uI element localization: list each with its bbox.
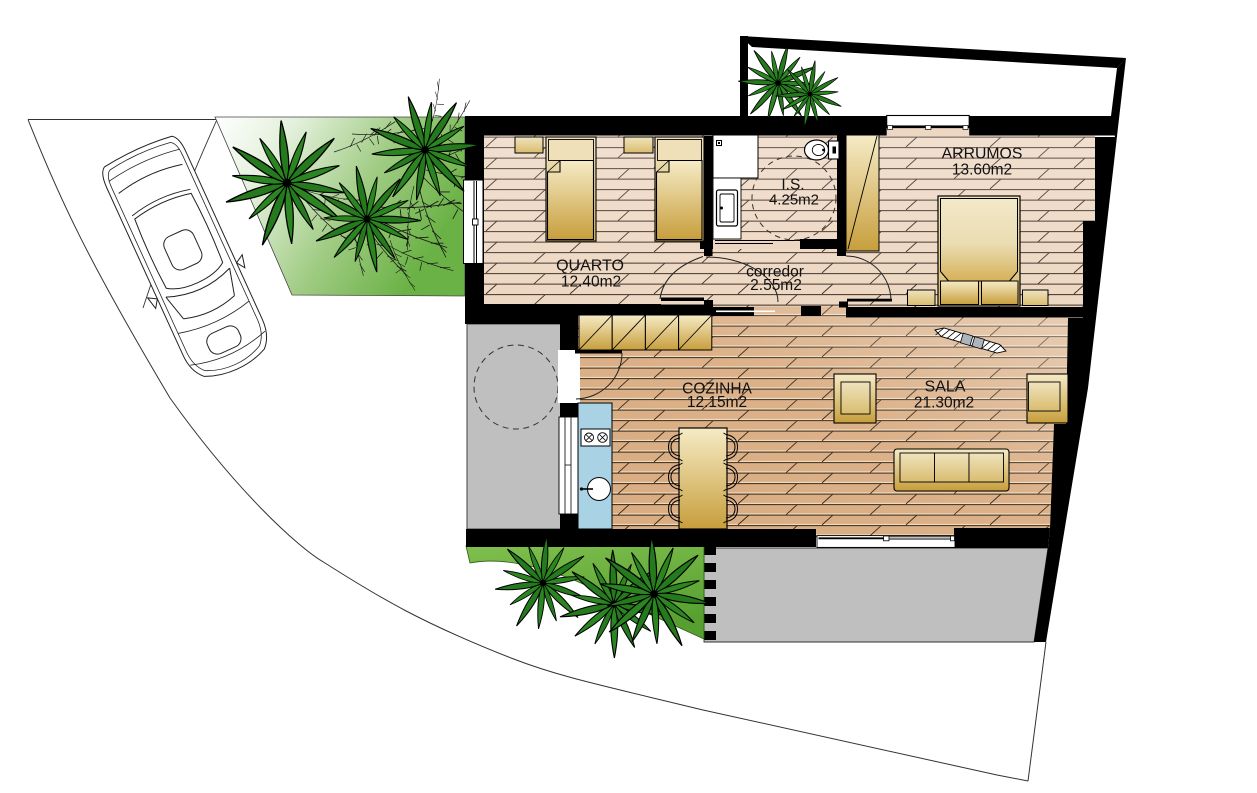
svg-text:4.25m2: 4.25m2 bbox=[769, 192, 819, 209]
svg-text:ARRUMOS: ARRUMOS bbox=[942, 146, 1023, 163]
svg-text:21.30m2: 21.30m2 bbox=[914, 395, 974, 412]
svg-text:13.60m2: 13.60m2 bbox=[952, 162, 1012, 179]
svg-text:QUARTO: QUARTO bbox=[556, 258, 624, 275]
svg-text:SALA: SALA bbox=[925, 379, 966, 396]
svg-text:2.55m2: 2.55m2 bbox=[750, 277, 802, 294]
svg-text:12.40m2: 12.40m2 bbox=[561, 274, 621, 291]
svg-text:12.15m2: 12.15m2 bbox=[687, 394, 747, 411]
